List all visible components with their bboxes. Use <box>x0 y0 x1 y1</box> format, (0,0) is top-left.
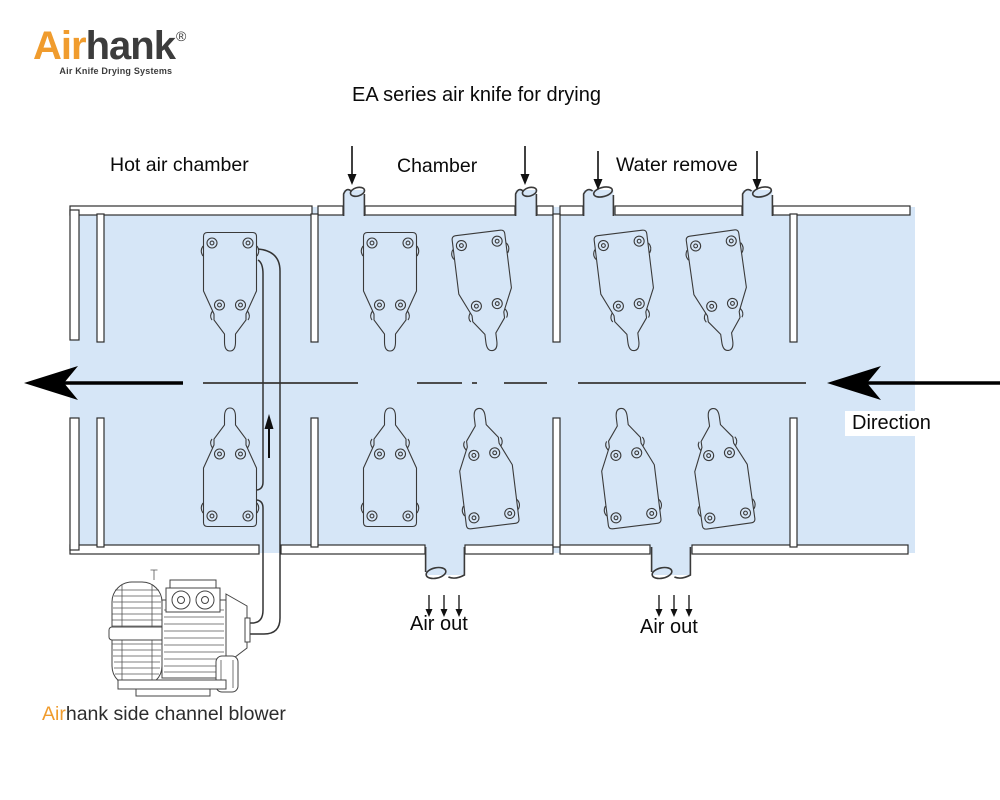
label-direction: Direction <box>845 411 938 436</box>
page: Airhank® Air Knife Drying Systems EA ser… <box>0 0 1000 800</box>
outlet-pipe-icon <box>425 547 464 580</box>
side-channel-blower <box>109 570 250 696</box>
inlet-arrows <box>348 146 762 190</box>
down-arrow-icon <box>521 146 530 185</box>
down-arrow-icon <box>348 146 357 185</box>
inlet-pipe-icon <box>516 186 538 216</box>
blower-caption: Airhank side channel blower <box>42 703 286 726</box>
blower-lift-eye <box>151 570 158 580</box>
outlet-pipe-icon <box>651 547 690 580</box>
blower-outlet-cone <box>226 594 247 664</box>
down-arrow-icon <box>594 151 603 190</box>
blower-base <box>118 680 226 689</box>
chamber-fill <box>70 207 915 553</box>
caption-brand-prefix: Air <box>42 703 66 725</box>
drying-chamber <box>70 207 915 553</box>
inlet-pipe-icon <box>584 185 614 216</box>
inlet-pipe-icon <box>743 185 773 216</box>
diagram-canvas <box>0 0 1000 800</box>
caption-text: hank side channel blower <box>66 703 286 725</box>
small-down-arrow-icon <box>671 595 678 617</box>
small-down-arrow-icon <box>656 595 663 617</box>
small-down-arrow-icon <box>686 595 693 617</box>
down-arrow-icon <box>753 151 762 190</box>
label-air-out-left: Air out <box>410 613 468 636</box>
inlet-pipe-icon <box>344 186 366 216</box>
label-air-out-right: Air out <box>640 616 698 639</box>
